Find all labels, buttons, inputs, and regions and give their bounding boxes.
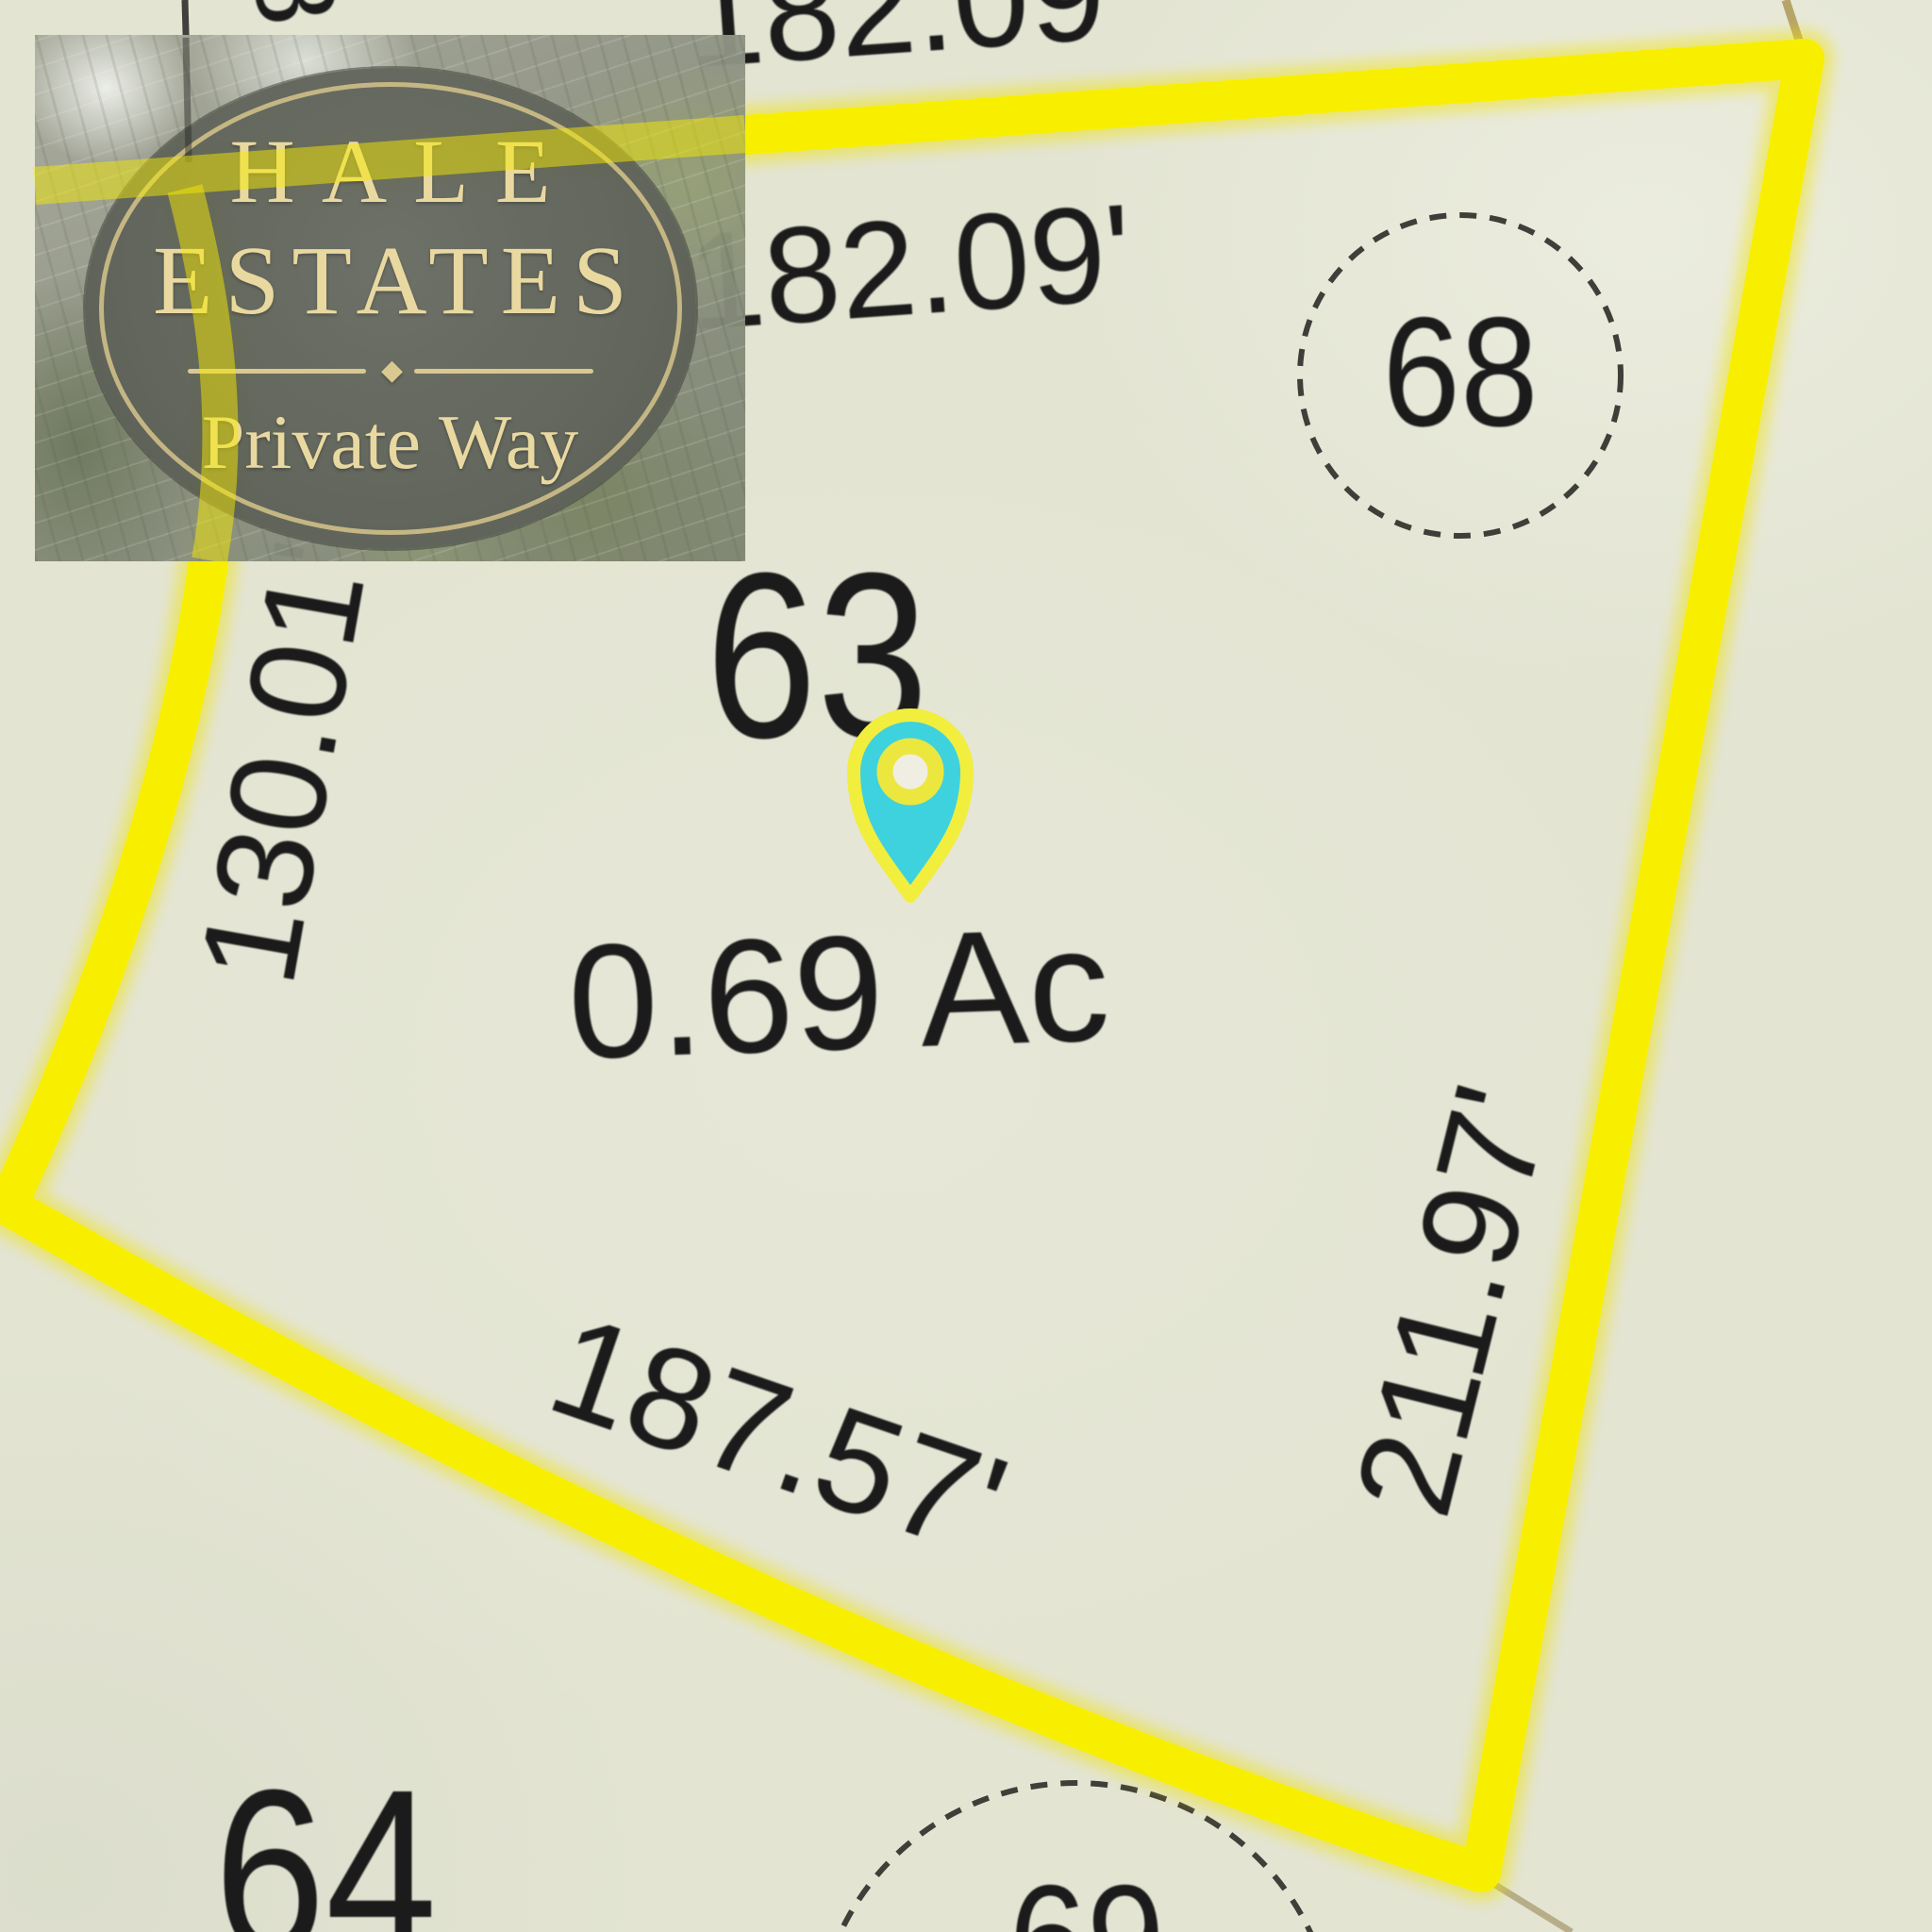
lot-64-number: 64 <box>214 1755 437 1932</box>
hale-estates-sign-oval: HALE ESTATES ◆ Private Way <box>85 68 696 549</box>
lot-69-number: 69 <box>1008 1862 1165 1932</box>
leaf-ornament-icon: ◆ <box>381 357 399 385</box>
plat-map-canvas[interactable]: 182.09 8 182.09' 130.01' 211.97' 187.57'… <box>0 0 1932 1932</box>
sign-subtitle: Private Way <box>202 404 579 481</box>
dimension-label-top: 182.09' <box>684 184 1137 352</box>
hale-estates-sign-photo: HALE ESTATES ◆ Private Way <box>35 35 745 561</box>
lot-63-area: 0.69 Ac <box>565 903 1111 1084</box>
sign-divider-ornament: ◆ <box>188 357 593 385</box>
lot-68-number: 68 <box>1382 294 1539 450</box>
sign-title-line2: ESTATES <box>141 232 640 330</box>
sign-title-line1: HALE <box>204 126 577 217</box>
